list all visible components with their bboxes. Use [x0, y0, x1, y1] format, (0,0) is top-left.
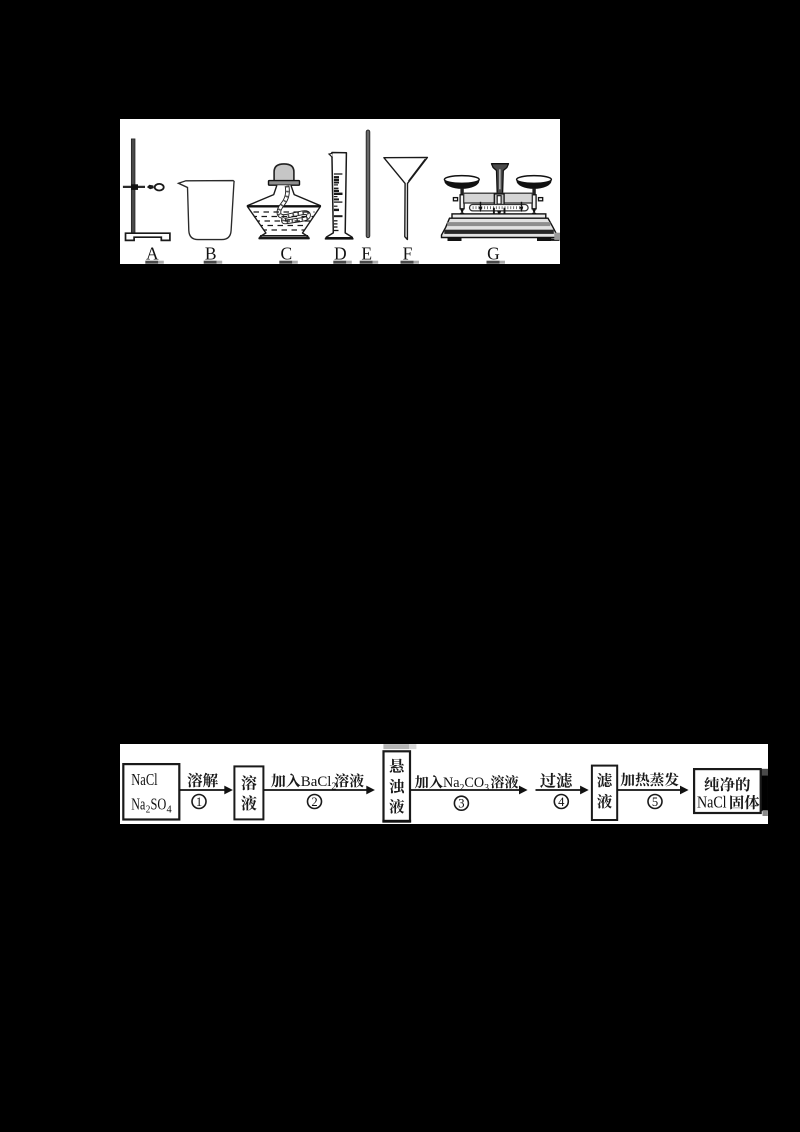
svg-text:BaCl2: BaCl2: [301, 774, 337, 792]
svg-text:2: 2: [311, 795, 317, 809]
svg-text:E: E: [361, 243, 372, 263]
svg-text:B: B: [204, 243, 216, 263]
svg-text:NaCl: NaCl: [697, 792, 727, 811]
svg-text:D: D: [333, 243, 346, 263]
svg-text:SO: SO: [151, 794, 167, 813]
svg-text:F: F: [402, 243, 412, 263]
svg-text:3: 3: [458, 796, 464, 810]
svg-text:Na2CO3: Na2CO3: [443, 775, 489, 793]
svg-text:A: A: [145, 243, 158, 263]
svg-text:4: 4: [167, 803, 173, 815]
svg-text:G: G: [487, 243, 500, 263]
svg-text:Na: Na: [131, 794, 145, 813]
svg-text:C: C: [280, 243, 292, 263]
svg-text:1: 1: [196, 795, 202, 809]
svg-text:NaCl: NaCl: [131, 770, 158, 789]
svg-text:5: 5: [652, 795, 658, 809]
svg-text:4: 4: [558, 795, 565, 809]
